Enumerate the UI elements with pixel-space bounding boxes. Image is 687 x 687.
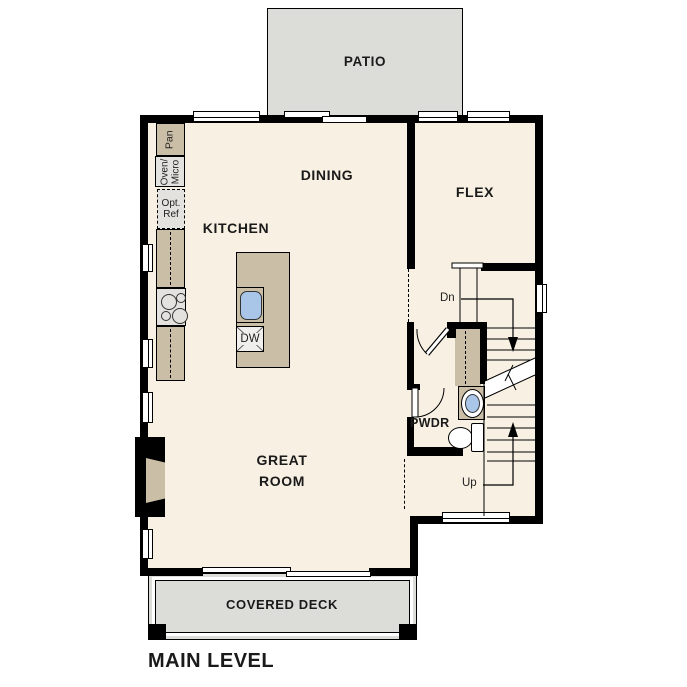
flex-label: FLEX: [440, 184, 510, 200]
oven-micro-label: Oven/Micro: [155, 156, 185, 187]
fireplace-insert: [146, 458, 165, 503]
pantry-label: Pan: [156, 123, 185, 156]
covered-deck-label: COVERED DECK: [226, 597, 338, 612]
window-flex-top-1: [418, 111, 458, 122]
burner-small-2: [161, 311, 171, 321]
upper-cabinet-dashed-line-2: [170, 329, 171, 378]
window-left-1: [142, 244, 153, 272]
patio-slider-panel-b: [322, 116, 367, 123]
down-arrow: [461, 299, 513, 337]
deck-post-left: [148, 624, 166, 640]
wall-connector: [410, 516, 418, 576]
window-kitchen-top: [193, 111, 260, 122]
up-label: Up: [462, 477, 477, 489]
cooktop: [156, 288, 186, 326]
burner-large-1: [161, 294, 177, 310]
kitchen-label: KITCHEN: [196, 220, 276, 236]
down-label: Dn: [440, 292, 455, 304]
closet-door-swing: [417, 329, 427, 354]
great-room-label: GREAT ROOM: [232, 452, 332, 489]
dining-label: DINING: [289, 167, 365, 183]
burner-large-2: [172, 308, 188, 324]
burner-small-1: [176, 293, 186, 303]
powder-door-swing: [415, 388, 444, 417]
deck-slider-panel-b: [286, 571, 371, 577]
window-left-2: [142, 339, 153, 368]
wall-dining-flex: [407, 119, 415, 269]
dishwasher-label: DW: [237, 327, 263, 351]
deck-post-right: [399, 624, 417, 640]
powder-door-leaf: [412, 388, 418, 417]
deck-slider-panel-a: [202, 567, 291, 573]
opt-ref-label: Opt.Ref: [157, 189, 185, 229]
upper-cabinet-dashed-line-1: [170, 232, 171, 285]
wall-bottom-left-a: [140, 568, 203, 576]
stair-railing: [452, 263, 483, 268]
window-flex-top-2: [467, 111, 510, 122]
window-left-4: [142, 529, 153, 559]
dishwasher: DW: [236, 326, 264, 352]
floor-plan: DW: [0, 0, 687, 687]
window-left-3: [142, 392, 153, 423]
plan-title: MAIN LEVEL: [148, 650, 274, 673]
patio-label: PATIO: [315, 54, 415, 69]
powder-label: PWDR: [410, 416, 456, 430]
kitchen-sink: [240, 291, 262, 320]
